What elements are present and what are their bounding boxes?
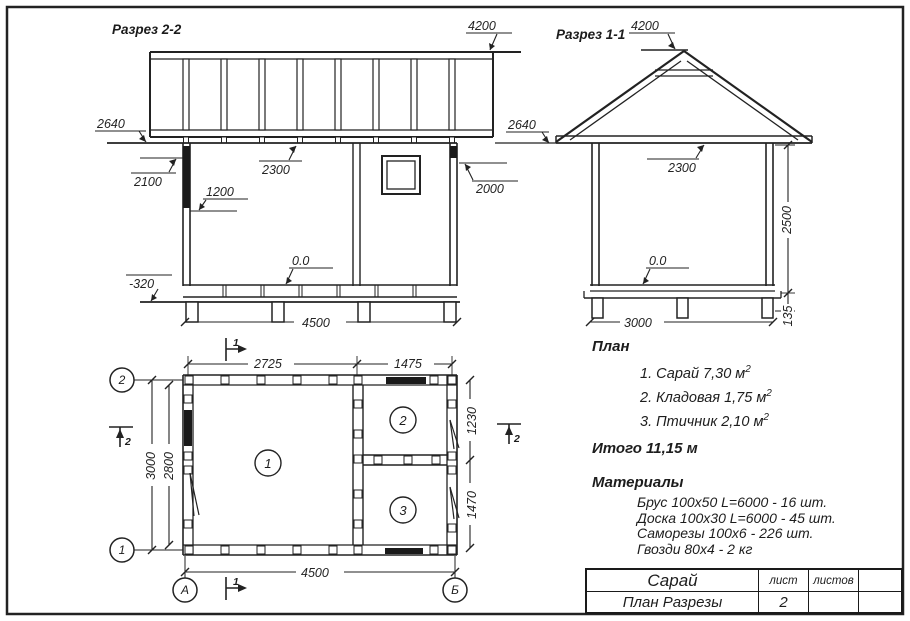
section-2-2-window	[382, 156, 420, 194]
material-item: Брус 100х50 L=6000 - 16 шт.	[637, 495, 907, 511]
elev-00-section22: 0.0	[292, 254, 309, 268]
materials-heading: Материалы	[592, 474, 907, 491]
elev-2000-section22: 2000	[475, 182, 504, 196]
dim-2500-section11: 2500	[780, 206, 794, 235]
axis-bubble-b: Б	[451, 583, 459, 597]
dim-3000-plan: 3000	[144, 452, 158, 480]
cut-mark-2-left: 2	[109, 427, 133, 448]
material-item: Доска 100х30 L=6000 - 45 шт.	[637, 511, 907, 527]
title-block-object: Сарай	[587, 570, 758, 591]
notes-block: План 1. Сарай 7,30 м2 2. Кладовая 1,75 м…	[585, 338, 907, 557]
section-2-2-drawing: Разрез 2-2	[95, 19, 521, 330]
title-block-empty-cell	[858, 591, 901, 612]
total-area: Итого 11,15 м	[592, 440, 907, 457]
title-block-empty-cell	[858, 570, 901, 591]
svg-text:2: 2	[513, 433, 520, 445]
title-block-sheets-label: листов	[808, 570, 858, 591]
elev-2300-section11: 2300	[667, 161, 696, 175]
elev-minus320-section22: -320	[129, 277, 154, 291]
dim-2725-plan: 2725	[253, 357, 282, 371]
axis-bubble-1: 1	[119, 543, 126, 557]
elev-00-section11: 0.0	[649, 254, 666, 268]
dim-1230-plan: 1230	[465, 407, 479, 435]
dim-2800-plan: 2800	[162, 452, 176, 481]
room-bubble-2: 2	[398, 413, 407, 428]
elev-4200-section22: 4200	[468, 19, 496, 33]
elev-2100-section22: 2100	[133, 175, 162, 189]
room-area-list: 1. Сарай 7,30 м2 2. Кладовая 1,75 м2 3. …	[640, 360, 907, 431]
dim-3000-section11: 3000	[624, 316, 652, 330]
elev-2300-section22: 2300	[261, 163, 290, 177]
title-block: Сарай лист листов План Разрезы 2	[585, 568, 903, 614]
svg-text:1: 1	[233, 337, 239, 349]
room-area-item: 2. Кладовая 1,75 м2	[640, 384, 907, 408]
room-bubble-1: 1	[264, 456, 271, 471]
dim-1475-plan: 1475	[394, 357, 422, 371]
room-area-item: 1. Сарай 7,30 м2	[640, 360, 907, 384]
dim-1470-plan: 1470	[465, 491, 479, 519]
title-block-sheet-number: 2	[758, 591, 808, 612]
title-block-empty-cell	[808, 591, 858, 612]
section-1-1-title: Разрез 1-1	[556, 27, 625, 42]
section-1-1-drawing: Разрез 1-1 4200 2640 2300 0.0	[495, 19, 812, 330]
material-item: Саморезы 100х6 - 226 шт.	[637, 526, 907, 542]
title-block-sheet-label: лист	[758, 570, 808, 591]
cut-mark-1-top: 1	[226, 337, 247, 361]
dim-135-section11: 135	[781, 306, 795, 327]
elev-2640-section22: 2640	[96, 117, 125, 131]
section-2-2-title: Разрез 2-2	[112, 22, 182, 37]
elev-2640-section11: 2640	[507, 118, 536, 132]
axis-bubble-a: А	[180, 583, 189, 597]
material-item: Гвозди 80х4 - 2 кг	[637, 542, 907, 558]
cut-mark-1-bottom: 1	[226, 576, 247, 600]
cut-mark-2-right: 2	[497, 424, 521, 445]
svg-text:2: 2	[124, 436, 131, 448]
dim-4500-plan: 4500	[301, 566, 329, 580]
blueprint-sheet: Разрез 2-2	[0, 0, 910, 621]
svg-text:1: 1	[233, 576, 239, 588]
materials-list: Брус 100х50 L=6000 - 16 шт. Доска 100х30…	[637, 495, 907, 557]
title-block-doc-title: План Разрезы	[587, 591, 758, 612]
room-bubble-3: 3	[399, 503, 407, 518]
axis-bubble-2: 2	[118, 373, 126, 387]
floor-plan-drawing: 2 1 А Б 1 2 3 2725 1475 3000	[109, 337, 521, 602]
room-area-item: 3. Птичник 2,10 м2	[640, 408, 907, 432]
plan-heading: План	[592, 338, 907, 355]
dim-4500-section22: 4500	[302, 316, 330, 330]
elev-4200-section11: 4200	[631, 19, 659, 33]
elev-1200-section22: 1200	[206, 185, 234, 199]
